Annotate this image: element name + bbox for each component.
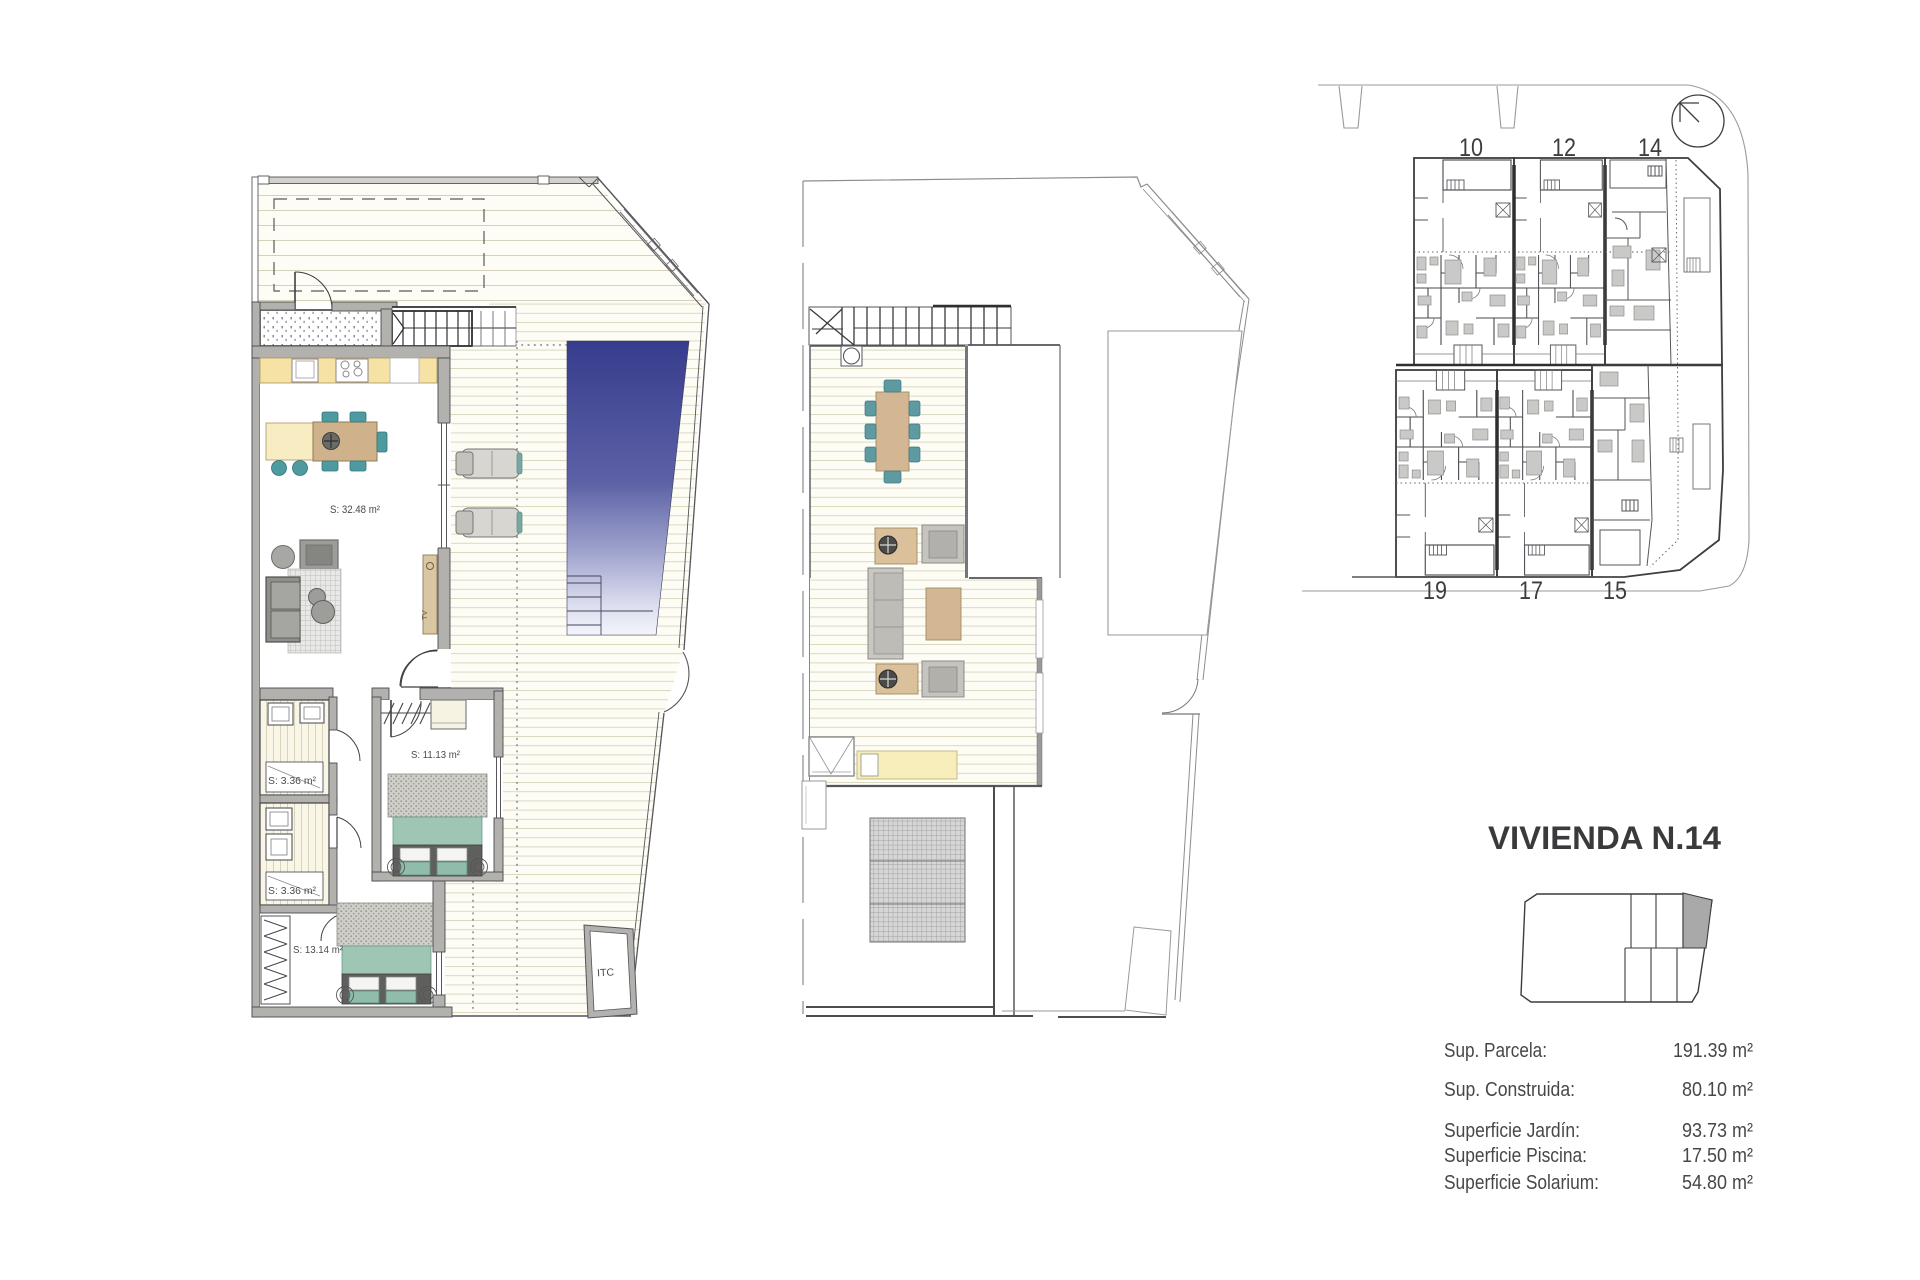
- svg-text:S: 3.36 m²: S: 3.36 m²: [268, 885, 316, 897]
- svg-text:19: 19: [1423, 577, 1447, 605]
- svg-text:VIVIENDA N.14: VIVIENDA N.14: [1488, 820, 1721, 856]
- svg-text:17.50 m²: 17.50 m²: [1682, 1145, 1753, 1167]
- svg-text:Superficie Piscina:: Superficie Piscina:: [1444, 1145, 1587, 1167]
- svg-text:Sup. Parcela:: Sup. Parcela:: [1444, 1040, 1547, 1062]
- svg-text:54.80 m²: 54.80 m²: [1682, 1172, 1753, 1194]
- svg-text:17: 17: [1519, 577, 1543, 605]
- svg-text:80.10 m²: 80.10 m²: [1682, 1079, 1753, 1101]
- svg-text:Superficie Jardín:: Superficie Jardín:: [1444, 1120, 1580, 1142]
- svg-text:191.39 m²: 191.39 m²: [1673, 1040, 1753, 1062]
- svg-text:S: 11.13 m²: S: 11.13 m²: [411, 749, 460, 761]
- svg-text:93.73 m²: 93.73 m²: [1682, 1120, 1753, 1142]
- svg-text:S: 32.48 m²: S: 32.48 m²: [330, 504, 380, 516]
- svg-text:TV: TV: [420, 610, 429, 620]
- svg-text:S: 13.14 m²: S: 13.14 m²: [293, 944, 343, 956]
- svg-text:15: 15: [1603, 577, 1627, 605]
- svg-text:S: 3.36 m²: S: 3.36 m²: [268, 775, 316, 787]
- svg-text:Superficie Solarium:: Superficie Solarium:: [1444, 1172, 1599, 1194]
- svg-text:Sup. Construida:: Sup. Construida:: [1444, 1079, 1575, 1101]
- svg-text:ITC: ITC: [597, 967, 615, 980]
